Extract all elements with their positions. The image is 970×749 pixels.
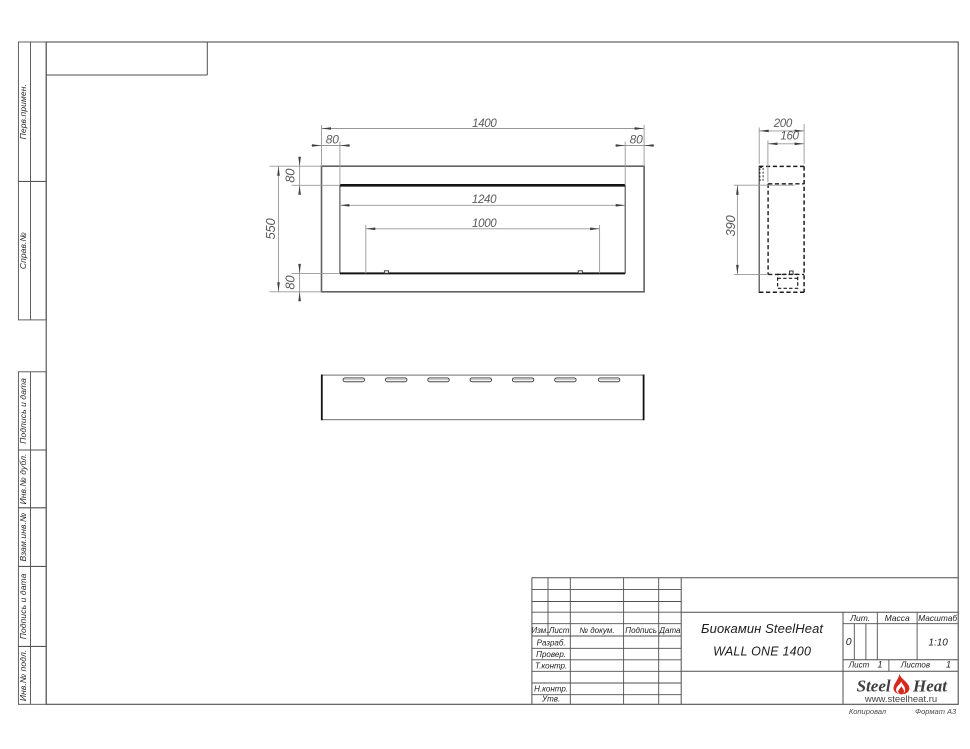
svg-text:390: 390 — [723, 214, 738, 236]
svg-text:Масса: Масса — [885, 613, 910, 623]
svg-text:Взам.инв.№: Взам.инв.№ — [18, 513, 28, 562]
svg-text:Инв.№ подл.: Инв.№ подл. — [18, 650, 28, 701]
svg-text:Подпись и дата: Подпись и дата — [18, 573, 28, 639]
svg-text:Heat: Heat — [912, 677, 948, 696]
svg-text:Изм.: Изм. — [531, 626, 548, 635]
svg-text:1: 1 — [946, 659, 951, 669]
svg-text:Подпись: Подпись — [625, 626, 657, 635]
svg-text:80: 80 — [326, 133, 339, 147]
svg-text:Лист: Лист — [548, 626, 570, 635]
svg-text:Листов: Листов — [900, 660, 930, 669]
svg-text:Масштаб: Масштаб — [918, 613, 957, 623]
svg-text:WALL ONE 1400: WALL ONE 1400 — [713, 645, 811, 659]
svg-text:Справ.№: Справ.№ — [18, 232, 28, 269]
svg-text:Н.контр.: Н.контр. — [534, 685, 568, 694]
svg-text:Формат А3: Формат А3 — [915, 707, 957, 716]
svg-text:Перв.примен.: Перв.примен. — [18, 84, 28, 139]
svg-text:1400: 1400 — [472, 118, 497, 130]
svg-text:Лит.: Лит. — [849, 613, 870, 623]
svg-text:200: 200 — [773, 118, 793, 130]
svg-text:1240: 1240 — [472, 194, 497, 206]
svg-text:Утв.: Утв. — [541, 694, 560, 703]
svg-text:1: 1 — [877, 659, 882, 669]
svg-text:Провер.: Провер. — [536, 650, 566, 659]
svg-text:Копировал: Копировал — [849, 707, 887, 716]
svg-text:Подпись и дата: Подпись и дата — [18, 378, 28, 444]
svg-text:Разраб.: Разраб. — [537, 638, 566, 647]
svg-text:80: 80 — [630, 133, 643, 147]
svg-text:Дата: Дата — [658, 626, 681, 635]
svg-text:www.steelheat.ru: www.steelheat.ru — [864, 694, 937, 705]
svg-text:Т.контр.: Т.контр. — [535, 661, 567, 670]
svg-text:Steel: Steel — [857, 677, 891, 696]
svg-text:160: 160 — [780, 131, 799, 143]
svg-text:80: 80 — [282, 275, 297, 290]
svg-text:№ докум.: № докум. — [579, 626, 614, 635]
svg-text:550: 550 — [263, 217, 278, 239]
svg-text:1000: 1000 — [472, 218, 497, 230]
svg-text:Биокамин SteelHeat: Биокамин SteelHeat — [701, 621, 824, 636]
svg-text:80: 80 — [282, 168, 297, 183]
svg-text:1:10: 1:10 — [928, 638, 948, 649]
svg-text:Лист: Лист — [848, 660, 870, 669]
svg-text:Инв.№ дубл.: Инв.№ дубл. — [18, 453, 28, 504]
svg-text:0: 0 — [846, 636, 852, 648]
